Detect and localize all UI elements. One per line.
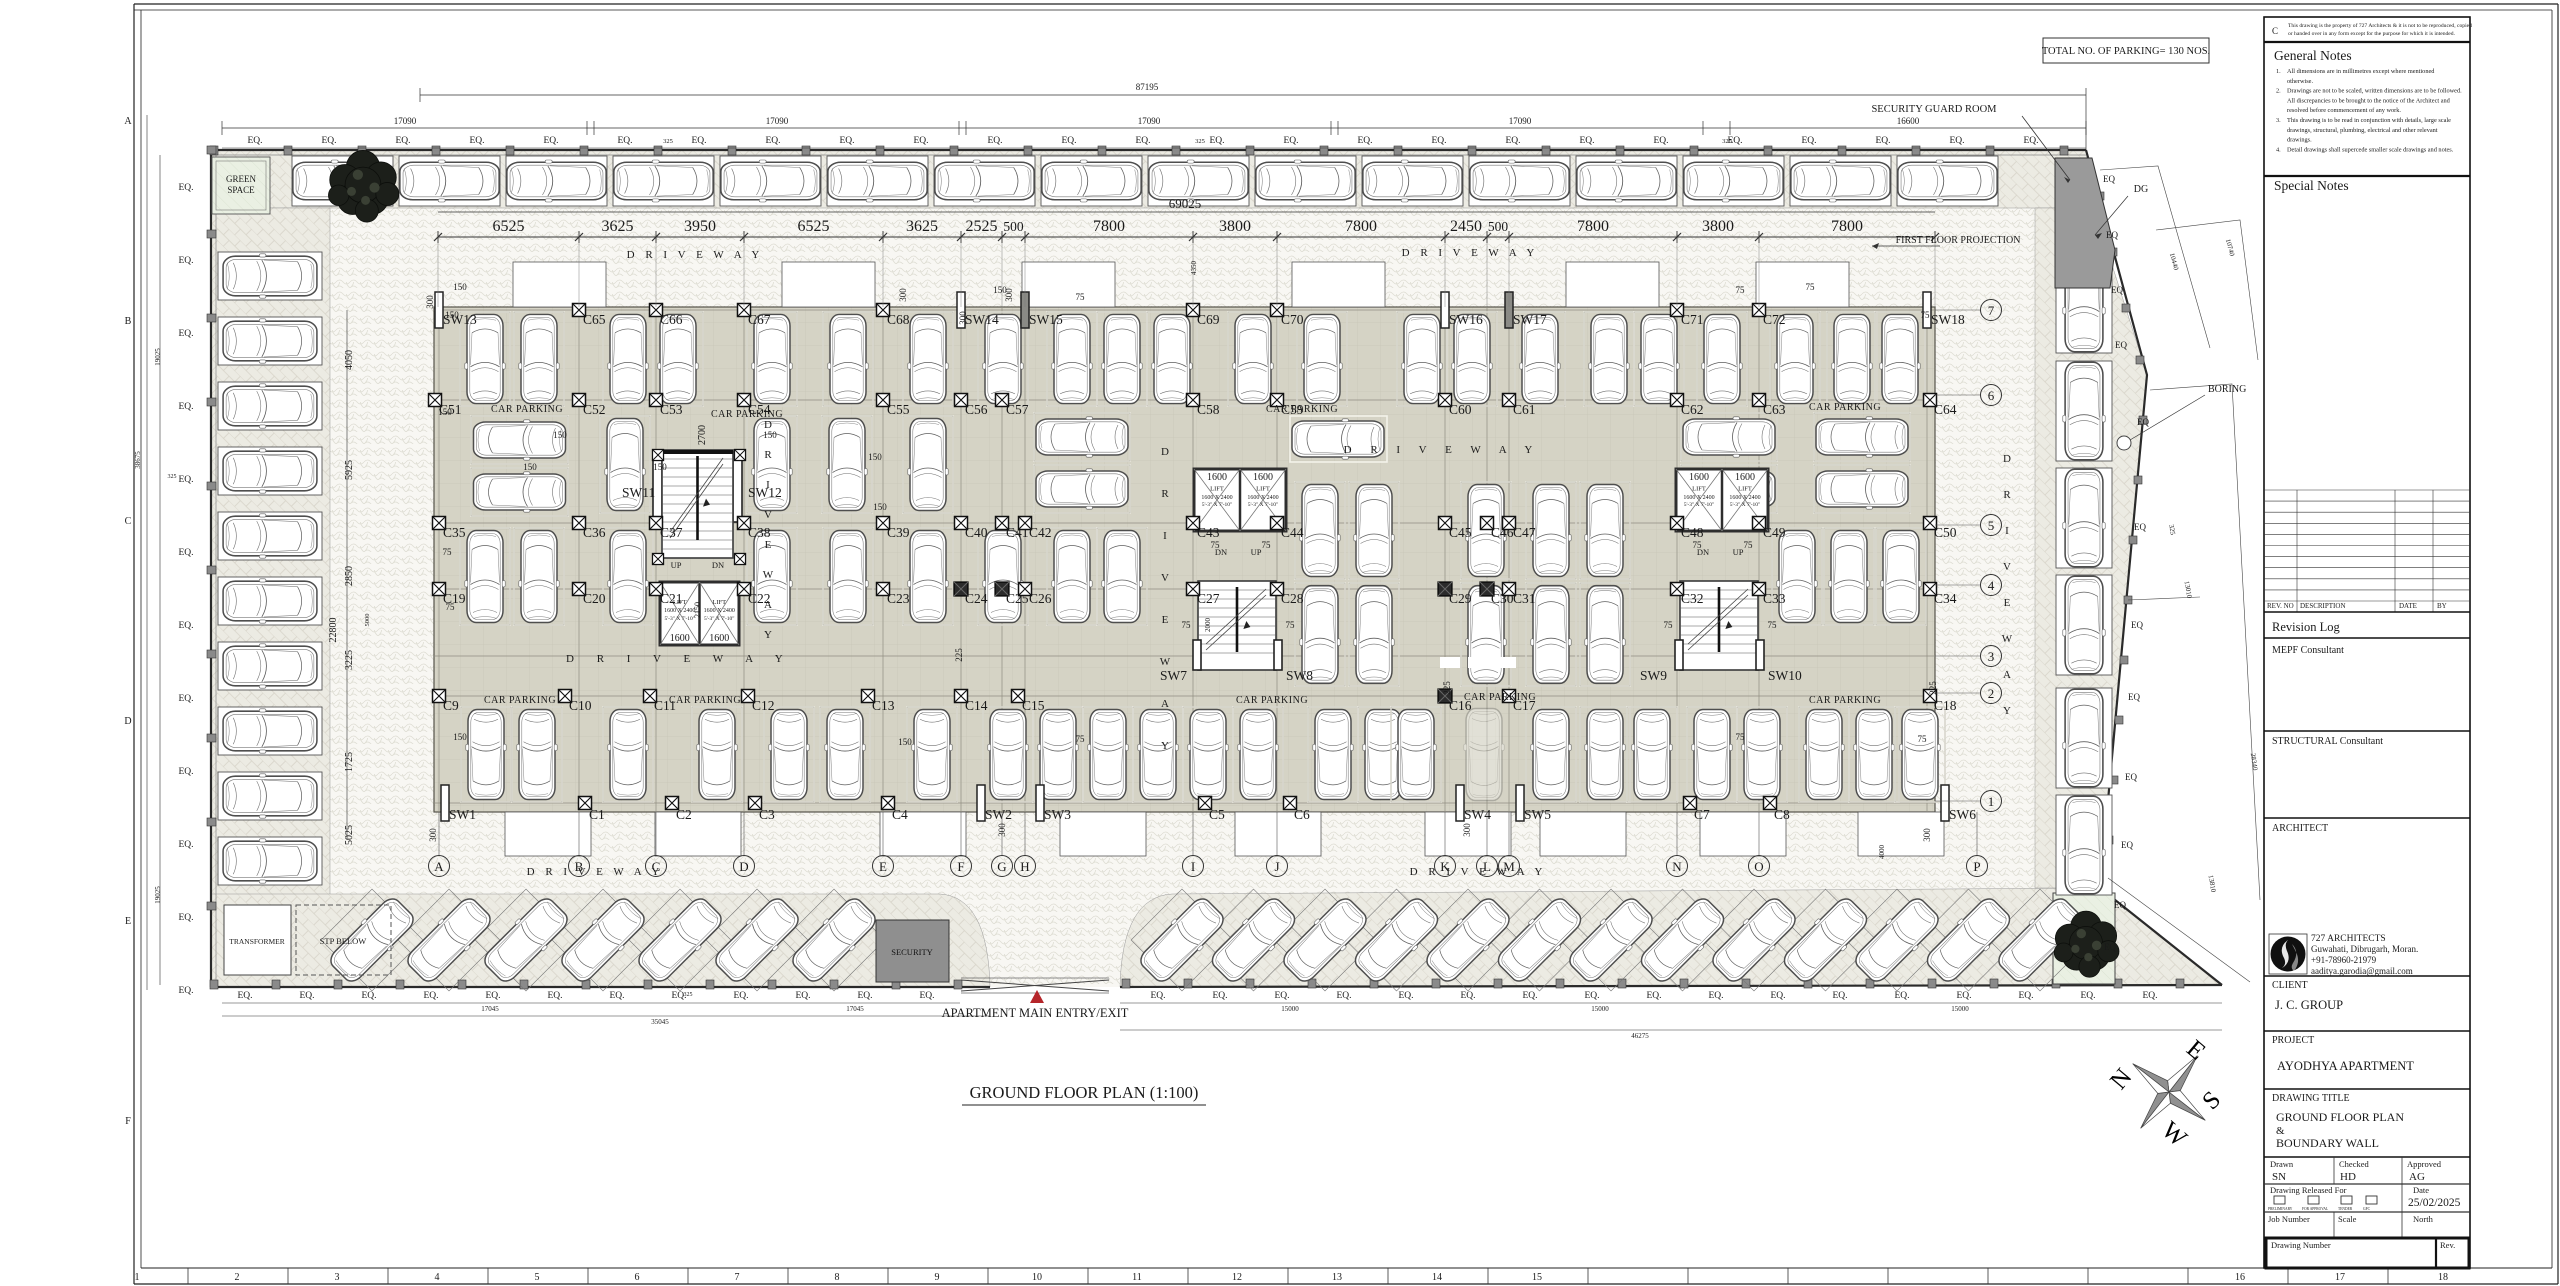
svg-text:1600 X 2400: 1600 X 2400 — [704, 608, 735, 614]
svg-text:C39: C39 — [887, 525, 910, 540]
svg-text:75: 75 — [1744, 540, 1754, 550]
svg-text:N: N — [1672, 859, 1682, 874]
svg-text:EQ.: EQ. — [178, 548, 193, 558]
svg-text:C66: C66 — [660, 312, 683, 327]
svg-text:EQ.: EQ. — [691, 136, 706, 146]
svg-text:E: E — [765, 539, 772, 551]
svg-text:7800: 7800 — [1831, 218, 1863, 235]
svg-text:1600: 1600 — [1253, 472, 1273, 483]
svg-text:300: 300 — [958, 311, 968, 325]
svg-text:SPACE: SPACE — [227, 185, 255, 195]
svg-text:EQ: EQ — [2103, 174, 2115, 184]
svg-text:8: 8 — [835, 1272, 840, 1283]
svg-text:3.: 3. — [2276, 117, 2281, 124]
svg-text:I: I — [2005, 525, 2009, 537]
svg-text:SW3: SW3 — [1044, 807, 1071, 822]
svg-text:C26: C26 — [1029, 591, 1052, 606]
svg-text:6525: 6525 — [493, 218, 525, 235]
svg-text:C67: C67 — [748, 312, 771, 327]
svg-text:C: C — [2272, 26, 2278, 36]
svg-text:75: 75 — [1076, 292, 1086, 302]
svg-text:D: D — [124, 716, 131, 727]
svg-text:150: 150 — [868, 452, 882, 462]
svg-text:EQ.: EQ. — [178, 694, 193, 704]
svg-text:7800: 7800 — [1093, 218, 1125, 235]
svg-text:17045: 17045 — [481, 1005, 499, 1013]
svg-text:EQ.: EQ. — [1274, 991, 1289, 1001]
svg-text:C: C — [125, 516, 132, 527]
svg-text:3950: 3950 — [684, 218, 716, 235]
svg-text:75: 75 — [1262, 540, 1272, 550]
svg-text:CAR PARKING: CAR PARKING — [1464, 692, 1536, 703]
svg-text:CAR PARKING: CAR PARKING — [711, 409, 783, 420]
svg-text:EQ.: EQ. — [1770, 991, 1785, 1001]
svg-text:11: 11 — [1132, 1272, 1142, 1283]
svg-text:2: 2 — [235, 1272, 240, 1283]
svg-text:C56: C56 — [965, 402, 988, 417]
svg-text:Guwahati, Dibrugarh, Moran.: Guwahati, Dibrugarh, Moran. — [2311, 944, 2418, 954]
svg-text:aaditya.garodia@gmail.com: aaditya.garodia@gmail.com — [2311, 966, 2413, 976]
svg-text:D: D — [1161, 446, 1169, 458]
svg-text:69025: 69025 — [1169, 196, 1202, 211]
svg-text:D: D — [2003, 453, 2011, 465]
svg-text:E: E — [125, 916, 131, 927]
svg-text:2700: 2700 — [697, 425, 708, 445]
svg-text:ARCHITECT: ARCHITECT — [2272, 823, 2328, 834]
svg-text:EQ.: EQ. — [178, 475, 193, 485]
svg-text:1600: 1600 — [1689, 472, 1709, 483]
svg-text:C36: C36 — [583, 525, 606, 540]
svg-text:EQ.: EQ. — [237, 991, 252, 1001]
svg-text:EQ.: EQ. — [1894, 991, 1909, 1001]
svg-text:SW10: SW10 — [1768, 668, 1802, 683]
svg-text:EQ.: EQ. — [178, 402, 193, 412]
svg-text:This drawing is to be read in: This drawing is to be read in conjunctio… — [2287, 117, 2451, 124]
svg-text:F: F — [957, 859, 964, 874]
svg-text:C38: C38 — [748, 525, 771, 540]
svg-text:C44: C44 — [1281, 525, 1304, 540]
svg-text:C35: C35 — [443, 525, 466, 540]
svg-text:CAR PARKING: CAR PARKING — [1236, 695, 1308, 706]
svg-text:C70: C70 — [1281, 312, 1304, 327]
svg-text:75: 75 — [1806, 282, 1816, 292]
svg-text:3: 3 — [1988, 649, 1995, 664]
svg-text:EQ: EQ — [2111, 285, 2123, 295]
svg-text:EQ.: EQ. — [2018, 991, 2033, 1001]
svg-text:C43: C43 — [1197, 525, 1220, 540]
svg-text:500: 500 — [1003, 219, 1024, 234]
svg-text:75: 75 — [1736, 285, 1746, 295]
svg-text:GREEN: GREEN — [226, 174, 256, 184]
svg-text:150: 150 — [438, 407, 452, 417]
svg-text:DATE: DATE — [2399, 602, 2417, 610]
svg-text:LIFT: LIFT — [1210, 486, 1224, 493]
svg-text:150: 150 — [453, 282, 467, 292]
svg-text:EQ: EQ — [2106, 230, 2118, 240]
svg-text:EQ.: EQ. — [1522, 991, 1537, 1001]
svg-text:SW12: SW12 — [748, 485, 782, 500]
svg-text:C64: C64 — [1934, 402, 1957, 417]
svg-text:4050: 4050 — [344, 350, 355, 370]
svg-text:North: North — [2413, 1214, 2434, 1224]
svg-text:300: 300 — [1922, 828, 1932, 842]
svg-text:9: 9 — [935, 1272, 940, 1283]
svg-text:EQ.: EQ. — [919, 991, 934, 1001]
svg-text:EQ.: EQ. — [178, 840, 193, 850]
svg-text:Y: Y — [764, 629, 772, 641]
svg-text:C48: C48 — [1681, 525, 1704, 540]
svg-text:EQ: EQ — [2115, 340, 2127, 350]
svg-text:C27: C27 — [1197, 591, 1220, 606]
svg-text:C10: C10 — [569, 698, 592, 713]
svg-text:Checked: Checked — [2339, 1159, 2369, 1169]
svg-text:This drawing is the property o: This drawing is the property of 727 Arch… — [2288, 22, 2472, 29]
svg-text:19025: 19025 — [154, 348, 162, 366]
svg-text:4350: 4350 — [1190, 261, 1198, 276]
svg-text:UP: UP — [1251, 547, 1262, 557]
svg-text:E: E — [879, 859, 887, 874]
svg-text:75: 75 — [1664, 620, 1674, 630]
svg-text:325: 325 — [684, 992, 693, 998]
svg-text:325: 325 — [168, 474, 177, 480]
svg-text:V: V — [2003, 561, 2011, 573]
svg-text:2850: 2850 — [344, 566, 355, 586]
svg-text:EQ.: EQ. — [1398, 991, 1413, 1001]
svg-text:17: 17 — [2335, 1272, 2345, 1283]
svg-text:K: K — [1440, 859, 1450, 874]
svg-text:SW15: SW15 — [1029, 312, 1063, 327]
svg-text:STP BELOW: STP BELOW — [320, 936, 367, 946]
svg-text:Drawing Number: Drawing Number — [2271, 1240, 2331, 1250]
svg-text:3225: 3225 — [344, 650, 355, 670]
svg-text:L: L — [1483, 859, 1491, 874]
svg-text:C55: C55 — [887, 402, 910, 417]
svg-text:5: 5 — [1988, 518, 1995, 533]
svg-text:325: 325 — [1195, 138, 1205, 145]
svg-text:C2: C2 — [676, 807, 692, 822]
svg-text:C: C — [652, 859, 661, 874]
svg-text:1.: 1. — [2276, 68, 2281, 75]
svg-text:EQ.: EQ. — [395, 136, 410, 146]
svg-text:75: 75 — [1211, 540, 1221, 550]
svg-text:GROUND FLOOR PLAN (1:100): GROUND FLOOR PLAN (1:100) — [970, 1083, 1199, 1102]
svg-text:W: W — [2002, 633, 2013, 645]
svg-text:17090: 17090 — [766, 116, 789, 126]
svg-text:Drawing Released For: Drawing Released For — [2270, 1185, 2347, 1195]
svg-text:C9: C9 — [443, 698, 459, 713]
svg-text:General Notes: General Notes — [2274, 48, 2352, 63]
svg-text:EQ.: EQ. — [178, 256, 193, 266]
svg-text:I: I — [1191, 859, 1195, 874]
svg-text:300: 300 — [425, 295, 435, 309]
svg-text:M: M — [1503, 859, 1515, 874]
svg-text:C65: C65 — [583, 312, 606, 327]
svg-text:F: F — [125, 1116, 131, 1127]
svg-text:1600: 1600 — [709, 633, 729, 644]
svg-text:EQ.: EQ. — [1150, 991, 1165, 1001]
svg-text:300: 300 — [898, 288, 908, 302]
svg-text:325: 325 — [663, 138, 673, 145]
svg-text:Scale: Scale — [2338, 1214, 2357, 1224]
svg-text:C5: C5 — [1209, 807, 1225, 822]
svg-text:46275: 46275 — [1631, 1032, 1649, 1040]
svg-text:otherwise.: otherwise. — [2287, 78, 2313, 85]
svg-text:75: 75 — [446, 602, 456, 612]
svg-text:C47: C47 — [1513, 525, 1536, 540]
svg-text:325: 325 — [1722, 138, 1732, 145]
svg-text:7: 7 — [735, 1272, 740, 1283]
svg-text:C63: C63 — [1763, 402, 1786, 417]
svg-text:CLIENT: CLIENT — [2272, 980, 2308, 991]
svg-text:EQ.: EQ. — [178, 329, 193, 339]
svg-text:C7: C7 — [1694, 807, 1710, 822]
svg-text:D R I V E W A Y: D R I V E W A Y — [627, 249, 764, 261]
svg-text:25/02/2025: 25/02/2025 — [2408, 1197, 2461, 1209]
svg-text:Detail drawings shall superced: Detail drawings shall supercede smaller … — [2287, 146, 2454, 153]
svg-text:LIFT: LIFT — [1738, 486, 1752, 493]
svg-text:1600: 1600 — [670, 633, 690, 644]
svg-text:17045: 17045 — [846, 1005, 864, 1013]
svg-text:87195: 87195 — [1136, 82, 1159, 92]
svg-text:Date: Date — [2413, 1185, 2429, 1195]
svg-text:C12: C12 — [752, 698, 775, 713]
svg-text:APARTMENT MAIN ENTRY/EXIT: APARTMENT MAIN ENTRY/EXIT — [942, 1006, 1129, 1020]
svg-text:R: R — [1161, 488, 1169, 500]
svg-text:C68: C68 — [887, 312, 910, 327]
svg-text:C18: C18 — [1934, 698, 1957, 713]
svg-text:I: I — [766, 479, 770, 491]
svg-text:2: 2 — [1988, 686, 1995, 701]
svg-text:300: 300 — [428, 828, 438, 842]
svg-text:4000: 4000 — [1878, 845, 1886, 860]
svg-text:R: R — [2003, 489, 2011, 501]
svg-text:150: 150 — [445, 310, 459, 320]
svg-text:EQ: EQ — [2104, 942, 2116, 952]
svg-text:C15: C15 — [1022, 698, 1045, 713]
svg-text:C34: C34 — [1934, 591, 1957, 606]
svg-text:STRUCTURAL Consultant: STRUCTURAL Consultant — [2272, 736, 2383, 747]
svg-text:5025: 5025 — [344, 825, 355, 845]
svg-text:DRAWING TITLE: DRAWING TITLE — [2272, 1093, 2350, 1104]
svg-text:15000: 15000 — [1951, 1005, 1969, 1013]
svg-text:G: G — [997, 859, 1006, 874]
svg-text:150: 150 — [453, 732, 467, 742]
svg-text:TRANSFORMER: TRANSFORMER — [229, 937, 284, 946]
svg-text:AG: AG — [2409, 1171, 2425, 1183]
svg-text:150: 150 — [763, 430, 777, 440]
svg-text:FOR APPROVAL: FOR APPROVAL — [2302, 1207, 2328, 1211]
svg-text:SN: SN — [2272, 1171, 2286, 1183]
svg-text:C42: C42 — [1029, 525, 1052, 540]
svg-text:CAR PARKING: CAR PARKING — [669, 695, 741, 706]
svg-text:C53: C53 — [660, 402, 683, 417]
svg-text:DESCRIPTION: DESCRIPTION — [2300, 602, 2346, 610]
svg-text:+91-78960-21979: +91-78960-21979 — [2311, 955, 2377, 965]
svg-text:5925: 5925 — [344, 460, 355, 480]
svg-text:D R I V E W A Y: D R I V E W A Y — [1344, 444, 1541, 456]
svg-text:1600 X 2400: 1600 X 2400 — [664, 608, 695, 614]
svg-text:EQ.: EQ. — [1135, 136, 1150, 146]
svg-text:3: 3 — [335, 1272, 340, 1283]
svg-text:SW17: SW17 — [1513, 312, 1547, 327]
svg-text:EQ.: EQ. — [469, 136, 484, 146]
svg-text:5'-3" X 7'-10": 5'-3" X 7'-10" — [664, 616, 695, 622]
svg-text:C3: C3 — [759, 807, 775, 822]
svg-text:EQ.: EQ. — [2080, 991, 2095, 1001]
svg-text:FIRST FLOOR PROJECTION: FIRST FLOOR PROJECTION — [1896, 235, 2021, 246]
svg-text:PROJECT: PROJECT — [2272, 1035, 2314, 1046]
svg-text:EQ: EQ — [2121, 840, 2133, 850]
svg-text:C21: C21 — [660, 591, 683, 606]
svg-text:EQ.: EQ. — [1336, 991, 1351, 1001]
svg-text:3625: 3625 — [602, 218, 634, 235]
svg-text:EQ.: EQ. — [423, 991, 438, 1001]
svg-text:5: 5 — [535, 1272, 540, 1283]
svg-text:C1: C1 — [589, 807, 605, 822]
svg-text:C37: C37 — [660, 525, 683, 540]
svg-text:SW6: SW6 — [1949, 807, 1976, 822]
svg-text:EQ.: EQ. — [321, 136, 336, 146]
svg-text:6: 6 — [635, 1272, 640, 1283]
svg-text:C29: C29 — [1449, 591, 1472, 606]
svg-text:EQ.: EQ. — [178, 621, 193, 631]
svg-text:6525: 6525 — [798, 218, 830, 235]
svg-text:1: 1 — [135, 1272, 140, 1283]
svg-text:EQ.: EQ. — [839, 136, 854, 146]
svg-text:EQ.: EQ. — [765, 136, 780, 146]
svg-text:C61: C61 — [1513, 402, 1536, 417]
svg-text:2000: 2000 — [1204, 618, 1212, 633]
svg-text:EQ: EQ — [2114, 900, 2126, 910]
svg-text:300: 300 — [1004, 288, 1014, 302]
svg-text:16: 16 — [2235, 1272, 2245, 1283]
svg-text:EQ.: EQ. — [1956, 991, 1971, 1001]
svg-text:4.: 4. — [2276, 146, 2281, 153]
svg-text:CAR PARKING: CAR PARKING — [1266, 404, 1338, 415]
svg-text:EQ.: EQ. — [1431, 136, 1446, 146]
svg-text:B: B — [575, 859, 584, 874]
svg-text:drawings, structural, plumbing: drawings, structural, plumbing, electric… — [2287, 127, 2438, 134]
svg-text:C60: C60 — [1449, 402, 1472, 417]
svg-text:UP: UP — [1733, 547, 1744, 557]
svg-text:150: 150 — [873, 502, 887, 512]
svg-text:Rev.: Rev. — [2440, 1240, 2455, 1250]
svg-text:C13: C13 — [872, 698, 895, 713]
svg-text:LIFT: LIFT — [1256, 486, 1270, 493]
svg-text:1600 X 2400: 1600 X 2400 — [1729, 495, 1760, 501]
svg-text:2450: 2450 — [1450, 218, 1482, 235]
svg-text:300: 300 — [1462, 823, 1472, 837]
svg-text:C31: C31 — [1513, 591, 1536, 606]
svg-text:5'-3" X 7'-10": 5'-3" X 7'-10" — [1248, 502, 1279, 508]
svg-text:15: 15 — [1532, 1272, 1542, 1283]
svg-text:Y: Y — [2003, 705, 2011, 717]
svg-text:EQ: EQ — [2134, 522, 2146, 532]
svg-text:C14: C14 — [965, 698, 988, 713]
svg-text:W: W — [763, 569, 774, 581]
svg-text:C32: C32 — [1681, 591, 1704, 606]
svg-text:R: R — [764, 449, 772, 461]
svg-text:Job Number: Job Number — [2268, 1214, 2310, 1224]
svg-text:150: 150 — [553, 430, 567, 440]
svg-text:drawings.: drawings. — [2287, 137, 2312, 144]
svg-text:150: 150 — [898, 737, 912, 747]
svg-text:SW16: SW16 — [1449, 312, 1483, 327]
svg-text:C8: C8 — [1774, 807, 1790, 822]
svg-text:2150: 2150 — [693, 602, 702, 618]
svg-text:C45: C45 — [1449, 525, 1472, 540]
svg-text:EQ.: EQ. — [1212, 991, 1227, 1001]
svg-text:13: 13 — [1332, 1272, 1342, 1283]
svg-text:7: 7 — [1988, 303, 1995, 318]
svg-text:C71: C71 — [1681, 312, 1704, 327]
svg-text:35045: 35045 — [651, 1018, 669, 1026]
svg-text:Drawings are not to be scaled,: Drawings are not to be scaled, written d… — [2287, 88, 2462, 95]
svg-text:7800: 7800 — [1577, 218, 1609, 235]
svg-text:C33: C33 — [1763, 591, 1786, 606]
svg-text:C20: C20 — [583, 591, 606, 606]
svg-text:16600: 16600 — [1897, 116, 1920, 126]
svg-text:SECURITY: SECURITY — [891, 947, 933, 957]
svg-text:225: 225 — [954, 648, 964, 662]
svg-text:SW18: SW18 — [1931, 312, 1965, 327]
svg-text:J. C. GROUP: J. C. GROUP — [2275, 998, 2343, 1012]
svg-text:EQ.: EQ. — [1584, 991, 1599, 1001]
svg-text:22800: 22800 — [328, 618, 339, 643]
svg-text:TOTAL NO. OF PARKING= 130 NOS.: TOTAL NO. OF PARKING= 130 NOS. — [2042, 46, 2210, 57]
svg-text:C49: C49 — [1763, 525, 1786, 540]
svg-text:EQ.: EQ. — [2142, 991, 2157, 1001]
svg-text:O: O — [1754, 859, 1763, 874]
svg-text:PRELIMINARY: PRELIMINARY — [2268, 1207, 2293, 1211]
svg-text:EQ.: EQ. — [247, 136, 262, 146]
svg-text:150: 150 — [523, 462, 537, 472]
svg-text:4: 4 — [1988, 578, 1995, 593]
svg-text:3625: 3625 — [906, 218, 938, 235]
svg-text:75: 75 — [1736, 732, 1746, 742]
svg-text:C58: C58 — [1197, 402, 1220, 417]
svg-text:W: W — [1160, 656, 1171, 668]
svg-text:2.: 2. — [2276, 88, 2281, 95]
svg-text:HD: HD — [2340, 1171, 2356, 1183]
svg-text:LIFT: LIFT — [712, 599, 726, 606]
svg-text:EQ.: EQ. — [178, 183, 193, 193]
svg-text:A: A — [2003, 669, 2011, 681]
svg-text:Approved: Approved — [2407, 1159, 2442, 1169]
svg-text:H: H — [1020, 859, 1029, 874]
svg-text:C24: C24 — [965, 591, 988, 606]
svg-text:All discrepancies to be brough: All discrepancies to be brought to the n… — [2287, 97, 2451, 104]
svg-text:EQ.: EQ. — [2023, 136, 2038, 146]
svg-text:C28: C28 — [1281, 591, 1304, 606]
svg-text:1600: 1600 — [1207, 472, 1227, 483]
svg-text:Y: Y — [1161, 740, 1169, 752]
svg-text:EQ: EQ — [2125, 772, 2137, 782]
svg-text:SW11: SW11 — [622, 485, 655, 500]
svg-text:EQ: EQ — [2137, 417, 2149, 427]
svg-text:AYODHYA APARTMENT: AYODHYA APARTMENT — [2277, 1059, 2414, 1073]
svg-text:CAR PARKING: CAR PARKING — [1809, 402, 1881, 413]
svg-text:4: 4 — [435, 1272, 440, 1283]
svg-text:UP: UP — [671, 560, 682, 570]
svg-text:EQ.: EQ. — [1653, 136, 1668, 146]
svg-text:10: 10 — [1032, 1272, 1042, 1283]
svg-text:D R I V E W A Y: D R I V E W A Y — [527, 866, 664, 878]
svg-text:5000: 5000 — [364, 614, 371, 627]
svg-text:15000: 15000 — [1281, 1005, 1299, 1013]
svg-text:EQ.: EQ. — [1505, 136, 1520, 146]
svg-text:DN: DN — [712, 560, 724, 570]
